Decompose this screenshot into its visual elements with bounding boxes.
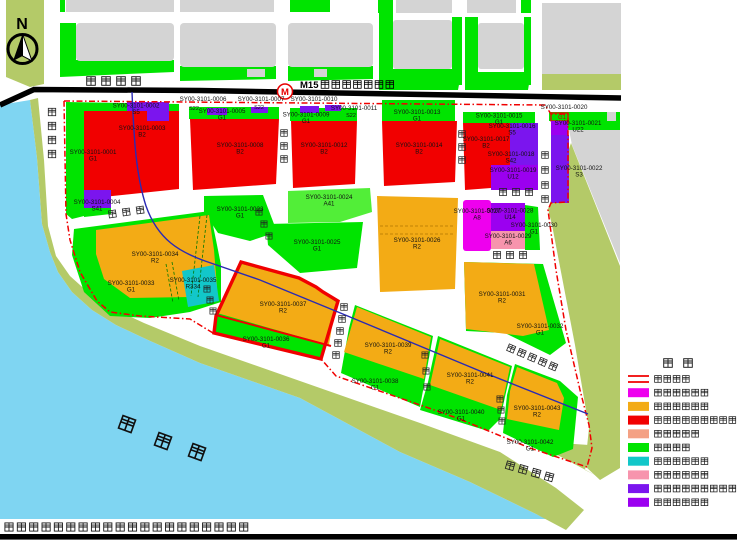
svg-text:G1: G1	[313, 245, 322, 252]
svg-text:R334: R334	[186, 283, 201, 290]
svg-text:N: N	[16, 16, 28, 33]
svg-text:A6: A6	[504, 239, 512, 246]
svg-text:G1: G1	[536, 329, 545, 336]
svg-text:S22: S22	[254, 105, 264, 111]
svg-text:G1: G1	[457, 415, 466, 422]
svg-text:S5: S5	[132, 109, 140, 116]
svg-text:R2: R2	[413, 243, 421, 250]
svg-text:U12: U12	[507, 173, 519, 180]
svg-text:B2: B2	[482, 142, 490, 149]
svg-text:S41: S41	[91, 205, 103, 212]
svg-text:G1: G1	[558, 115, 567, 121]
svg-text:S22: S22	[189, 106, 199, 112]
svg-text:G1: G1	[371, 384, 380, 391]
svg-text:B2: B2	[236, 148, 244, 155]
svg-text:R2: R2	[498, 297, 506, 304]
svg-text:SY00-3101-0010: SY00-3101-0010	[291, 96, 338, 103]
svg-text:SY00-3101-0020: SY00-3101-0020	[541, 104, 588, 111]
svg-text:G1: G1	[89, 155, 98, 162]
svg-text:M15: M15	[300, 80, 319, 91]
svg-text:B2: B2	[320, 148, 328, 155]
svg-text:SY00-3101-0006: SY00-3101-0006	[180, 96, 227, 103]
svg-text:A41: A41	[323, 200, 335, 207]
svg-text:A8: A8	[473, 214, 481, 221]
svg-text:G1: G1	[526, 445, 535, 452]
svg-text:G1: G1	[302, 118, 311, 125]
svg-text:S5: S5	[508, 129, 516, 136]
svg-text:R2: R2	[384, 348, 392, 355]
svg-text:R2: R2	[466, 378, 474, 385]
svg-text:U14: U14	[504, 214, 516, 221]
svg-text:S3: S3	[575, 171, 583, 178]
svg-text:S42: S42	[505, 157, 517, 164]
svg-text:SY00-3101-0011: SY00-3101-0011	[331, 105, 378, 112]
svg-text:G1: G1	[530, 228, 539, 235]
svg-text:G1: G1	[413, 115, 422, 122]
svg-text:R2: R2	[279, 307, 287, 314]
svg-text:G1: G1	[218, 114, 227, 121]
svg-text:S22: S22	[346, 113, 356, 119]
svg-text:R2: R2	[533, 411, 541, 418]
svg-text:G1: G1	[127, 286, 136, 293]
svg-text:G1: G1	[262, 342, 271, 349]
svg-text:U22: U22	[572, 126, 584, 133]
svg-text:B2: B2	[138, 131, 146, 138]
svg-text:G1: G1	[236, 212, 245, 219]
svg-text:R2: R2	[151, 257, 159, 264]
svg-text:SY00-3101-0007: SY00-3101-0007	[238, 96, 285, 103]
svg-text:B2: B2	[415, 148, 423, 155]
